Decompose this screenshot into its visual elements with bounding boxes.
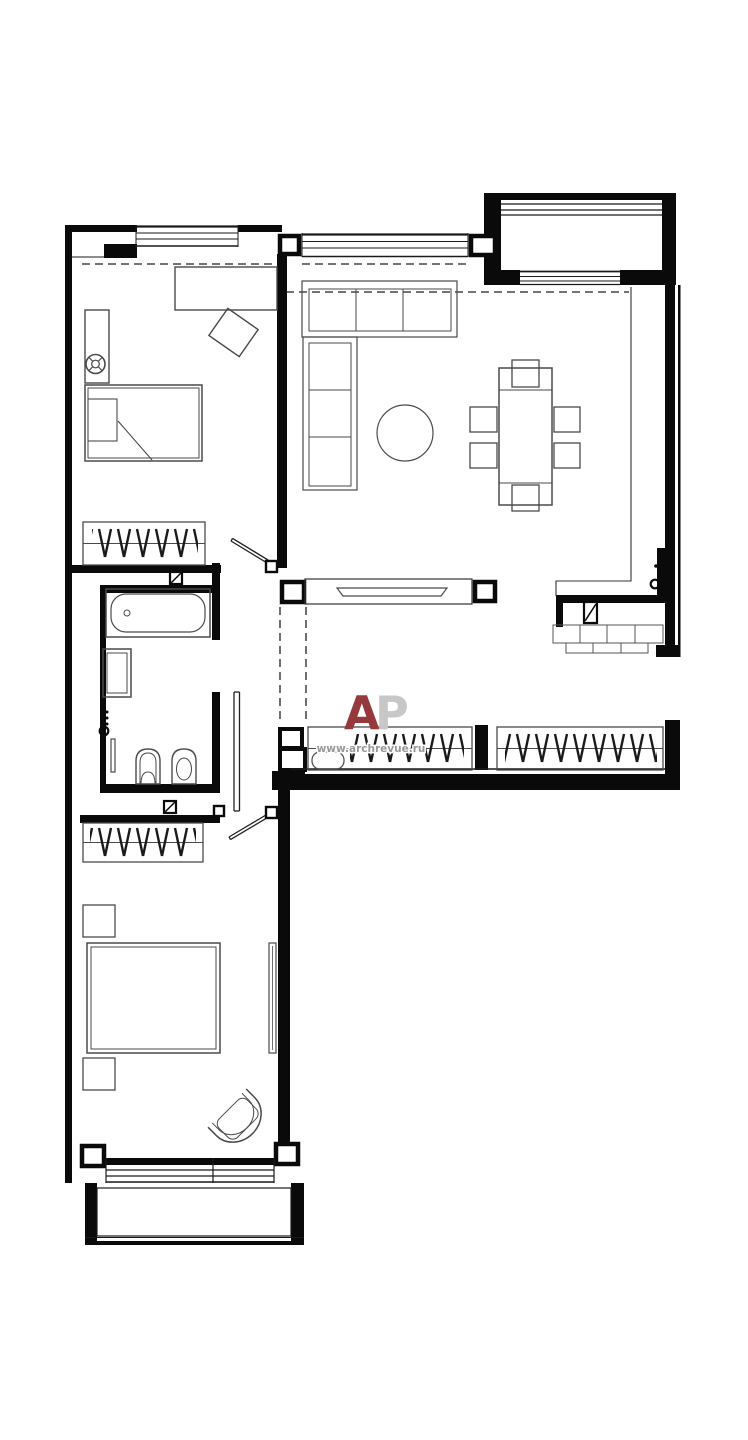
mirror: [269, 943, 276, 1053]
floor-plan-canvas: A P www.archrevue.ru: [0, 0, 748, 1440]
tub-armchair: [208, 1089, 272, 1153]
hanging-clothes-icon: [505, 733, 657, 763]
desk: [175, 267, 277, 310]
duct-icon: [170, 572, 182, 584]
door-pivot: [214, 806, 224, 816]
wardrobe-bedroom1: [83, 522, 205, 565]
pier-tvwall-left: [282, 582, 304, 602]
wall-bedroom2-top: [80, 815, 220, 823]
duct-icon: [164, 801, 176, 813]
shoe-cabinet-grid: [553, 625, 663, 653]
wall-bathroom-bottom: [103, 784, 213, 793]
wall-partition-bedroom1-living: [277, 254, 287, 568]
hanging-clothes-icon: [92, 528, 198, 558]
door-bedroom2: [229, 807, 277, 840]
wall-bathroom-right-upper: [212, 563, 220, 640]
bathtub: [106, 589, 210, 637]
pier-bedroom2-window-right: [276, 1144, 298, 1164]
bidet: [172, 749, 196, 784]
wall-top-bedroom1: [65, 225, 137, 232]
balcony1-railing: [501, 204, 662, 215]
bedroom-bottom: [83, 823, 276, 1153]
wall-bathroom-right-lower: [212, 692, 220, 793]
dining-chair: [512, 485, 539, 511]
double-bed: [87, 943, 220, 1053]
wall-right-outer-lower: [665, 720, 680, 790]
wall-balcony1-sill-right: [620, 270, 676, 285]
corner-sofa: [302, 281, 457, 490]
wall-left-outer: [65, 225, 72, 1183]
wall-bedroom2-right: [278, 790, 290, 1152]
doors: [214, 538, 277, 839]
towel-rail: [111, 739, 115, 772]
entry-area: [553, 564, 663, 653]
bathroom: [100, 572, 210, 813]
dining-chairs: [470, 360, 580, 511]
dresser: [85, 310, 109, 383]
watermark-letter-p: P: [375, 686, 409, 740]
wall-hall-corner-base: [272, 771, 305, 790]
dashed-ceiling-lines: [82, 264, 629, 724]
blanket-fold: [118, 421, 152, 460]
wall-right-outer-seam: [678, 285, 681, 657]
hanging-clothes-icon: [90, 827, 196, 857]
wall-entry-drop: [556, 603, 563, 627]
dining-chair: [512, 360, 539, 387]
single-bed: [85, 385, 202, 461]
nightstand: [83, 1058, 115, 1090]
wall-balcony2-bottom: [85, 1241, 304, 1245]
watermark-url: www.archrevue.ru: [317, 743, 426, 755]
door-bedroom1: [231, 538, 277, 572]
pillow: [88, 399, 117, 441]
wall-balcony2-right: [291, 1183, 304, 1245]
entry-zone-line: [556, 287, 631, 596]
wall-hall-wardrobe-pier: [475, 725, 488, 770]
door-pivot: [266, 561, 277, 572]
window-living-balcony: [520, 272, 620, 285]
toilet: [136, 749, 160, 784]
nightstand: [83, 905, 115, 937]
washing-machine: [103, 649, 131, 697]
pier-top-partition: [280, 236, 299, 254]
wall-balcony1-sill-left: [501, 270, 520, 285]
wall-right-foot: [656, 645, 680, 657]
watermark: A P www.archrevue.ru: [317, 686, 426, 755]
wall-entry-horizontal: [556, 595, 667, 603]
wall-balcony2-left: [85, 1183, 97, 1245]
wall-top-step: [104, 244, 137, 258]
pier-hall-corner-b: [280, 749, 305, 770]
living-room: [302, 281, 580, 604]
pier-bedroom2-window-left: [82, 1146, 104, 1166]
wardrobe-bedroom2: [83, 823, 203, 862]
wall-top-mid: [238, 225, 282, 232]
wall-balcony1-top: [484, 193, 676, 200]
floor-plan-drawing: A P www.archrevue.ru: [0, 0, 748, 1440]
lamp-icon: [86, 355, 105, 374]
wall-bedroom1-bottom: [71, 565, 221, 573]
pier-hall-corner-a: [280, 729, 302, 748]
dining-chair: [470, 407, 497, 432]
dining-chair: [470, 443, 497, 468]
bedroom-top: [83, 267, 277, 565]
tv-media-wall: [305, 579, 472, 604]
pier-tvwall-right: [475, 582, 495, 601]
tv-icon: [337, 588, 447, 596]
hall-wardrobe-right: [497, 727, 663, 770]
dining-chair: [554, 443, 580, 468]
duct-icon: [584, 602, 597, 623]
desk-chair: [209, 308, 258, 356]
balcony2-railing: [85, 1188, 304, 1238]
wall-bedroom2-window-sill: [104, 1158, 274, 1165]
drain: [124, 610, 130, 616]
dining-chair: [554, 407, 580, 432]
wall-hall-bottom: [305, 774, 680, 790]
pier-top-living: [471, 236, 495, 255]
coffee-table: [377, 405, 433, 461]
door-pivot: [266, 807, 277, 818]
window-living: [302, 233, 468, 257]
